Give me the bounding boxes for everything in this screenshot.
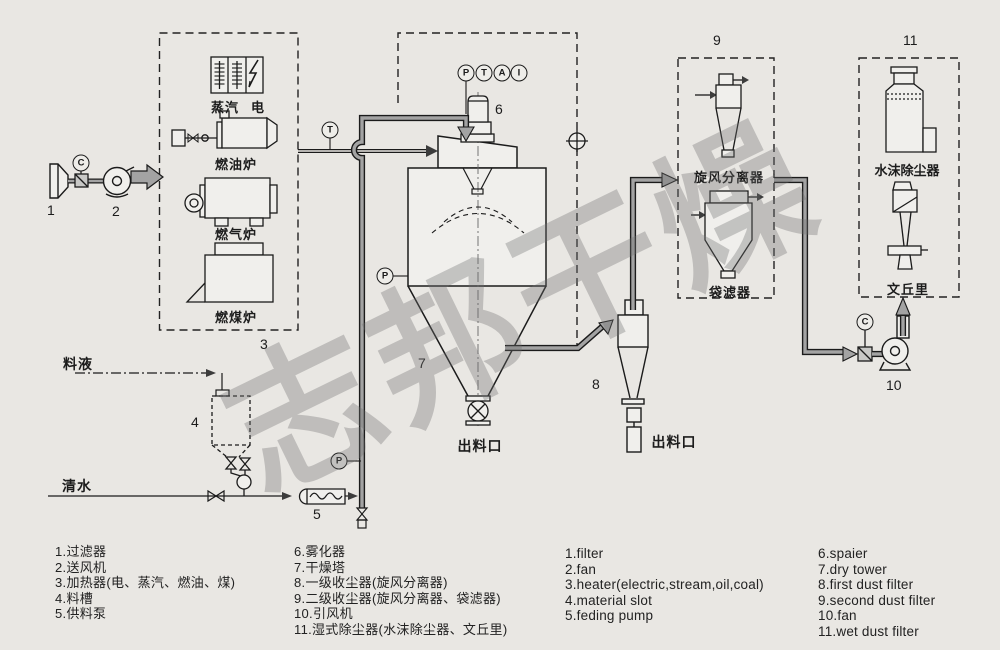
legend-item: 7.dry tower — [818, 562, 935, 578]
feed-p-gauge: P — [331, 453, 348, 470]
electric-label: 电 — [251, 97, 265, 116]
legend-item: 5.供料泵 — [55, 606, 235, 622]
feed-pump-symbol — [300, 489, 346, 504]
air-temp-gauge: T — [322, 122, 339, 139]
rotary-discharge-valve — [466, 396, 490, 425]
inlet-damper — [75, 170, 88, 187]
cyclone-outlet-label: 出料口 — [652, 432, 697, 452]
legend-item: 11.wet dust filter — [818, 624, 935, 640]
num-heater: 3 — [260, 336, 268, 352]
material-tank — [212, 396, 251, 496]
gas-furnace-symbol — [185, 178, 277, 226]
legend-item: 2.送风机 — [55, 560, 235, 576]
legend-item: 7.干燥塔 — [294, 560, 507, 576]
cyclone-separator-label: 旋风分离器 — [694, 167, 764, 186]
steam-label: 蒸汽 — [211, 97, 239, 116]
legend-item: 8.一级收尘器(旋风分离器) — [294, 575, 507, 591]
venturi-symbol — [888, 182, 928, 269]
legend-item: 1.filter — [565, 546, 764, 562]
flow-diagram-page: C T P T A I P P C 1 2 3 4 5 6 7 8 9 10 1… — [0, 0, 1000, 650]
supply-fan-symbol — [104, 167, 135, 197]
legend-item: 6.雾化器 — [294, 544, 507, 560]
inlet-c-gauge: C — [73, 155, 90, 172]
num-wet-duster: 11 — [903, 32, 918, 48]
legend-item: 3.heater(electric,stream,oil,coal) — [565, 577, 764, 593]
legend-item: 4.料槽 — [55, 591, 235, 607]
legend-column-en-2: 6.spaier 7.dry tower 8.first dust filter… — [818, 546, 935, 640]
legend-column-en-1: 1.filter 2.fan 3.heater(electric,stream,… — [565, 546, 764, 624]
num-secondary: 9 — [713, 32, 721, 48]
legend-item: 9.二级收尘器(旋风分离器、袋滤器) — [294, 591, 507, 607]
fan-to-heater-arrow — [131, 165, 163, 189]
num-tower: 7 — [418, 355, 426, 371]
legend-item: 10.fan — [818, 608, 935, 624]
air-filter-symbol — [50, 164, 68, 198]
legend-column-cn-1: 1.过滤器 2.送风机 3.加热器(电、蒸汽、燃油、煤) 4.料槽 5.供料泵 — [55, 544, 235, 622]
legend-item: 11.湿式除尘器(水沫除尘器、文丘里) — [294, 622, 507, 638]
fan-damper — [858, 330, 872, 361]
bag-filter-symbol — [691, 191, 764, 278]
water-spray-label: 水沫除尘器 — [874, 160, 939, 179]
tower-outlet-label: 出料口 — [458, 436, 503, 456]
oil-furnace-label: 燃油炉 — [215, 154, 257, 173]
num-supply-fan: 2 — [112, 203, 120, 219]
drying-tower — [408, 136, 546, 396]
coal-furnace-symbol — [187, 243, 273, 302]
primary-cyclone — [618, 300, 648, 452]
legend-item: 2.fan — [565, 562, 764, 578]
num-cyclone: 8 — [592, 376, 600, 392]
secondary-cyclone-symbol — [695, 74, 749, 157]
oil-furnace-symbol — [172, 111, 277, 148]
bag-filter-label: 袋滤器 — [709, 282, 751, 301]
legend-item: 8.first dust filter — [818, 577, 935, 593]
legend-item: 6.spaier — [818, 546, 935, 562]
num-tank: 4 — [191, 414, 199, 430]
legend-item: 4.material slot — [565, 593, 764, 609]
water-spray-vessel — [886, 67, 936, 152]
legend-item: 9.second dust filter — [818, 593, 935, 609]
legend-item: 1.过滤器 — [55, 544, 235, 560]
num-atomizer: 6 — [495, 101, 503, 117]
legend-item: 10.引风机 — [294, 606, 507, 622]
cyclone-to-secondary-pipe — [633, 173, 677, 310]
num-filter: 1 — [47, 202, 55, 218]
fan-c-gauge: C — [857, 314, 874, 331]
p-instrument: P — [458, 65, 475, 82]
num-induced-fan: 10 — [886, 377, 902, 393]
secondary-to-fan-pipe — [774, 180, 857, 361]
tower-p-gauge: P — [377, 268, 394, 285]
i-instrument: I — [511, 65, 528, 82]
a-instrument: A — [494, 65, 511, 82]
legend-item: 3.加热器(电、蒸汽、燃油、煤) — [55, 575, 235, 591]
num-feed-pump: 5 — [313, 506, 321, 522]
legend-column-cn-2: 6.雾化器 7.干燥塔 8.一级收尘器(旋风分离器) 9.二级收尘器(旋风分离器… — [294, 544, 507, 638]
gas-furnace-label: 燃气炉 — [215, 224, 257, 243]
t-instrument: T — [476, 65, 493, 82]
pump-discharge-arrow — [345, 492, 358, 500]
vent-symbol — [566, 130, 588, 152]
clean-water-label: 清水 — [62, 476, 92, 496]
feed-liquid-line — [75, 369, 229, 396]
feed-liquid-label: 料液 — [63, 354, 93, 374]
coal-furnace-label: 燃煤炉 — [215, 307, 257, 326]
venturi-label: 文丘里 — [887, 279, 929, 298]
pipe-drain-fitting — [357, 508, 367, 528]
legend-item: 5.feding pump — [565, 608, 764, 624]
hot-air-duct — [298, 138, 438, 157]
